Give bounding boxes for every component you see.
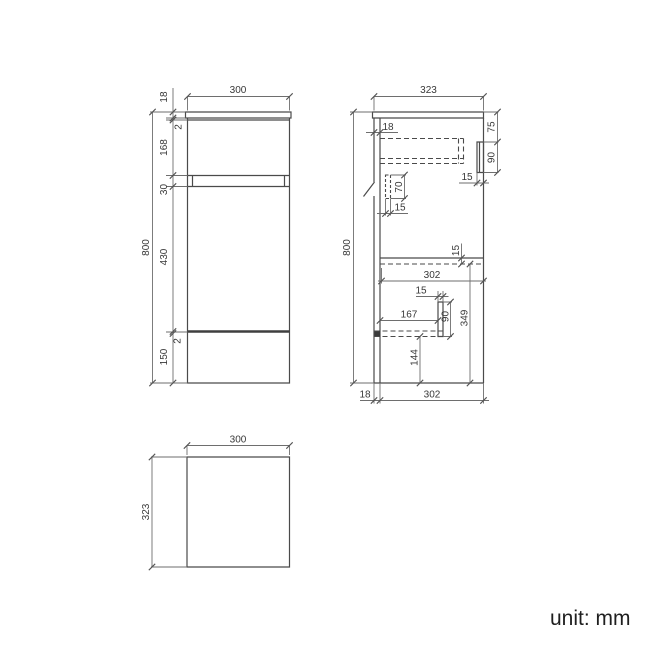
- top-view-dimension-lines: [149, 442, 293, 570]
- svg-text:2: 2: [174, 124, 185, 130]
- side-front-offset-dim: 75: [487, 121, 498, 133]
- unit-label: unit: mm: [550, 607, 631, 630]
- side-divider-height-dim: 90: [441, 311, 452, 323]
- side-view-object-lines: [364, 112, 484, 383]
- svg-text:430: 430: [159, 248, 170, 265]
- front-top-thickness-dim: 18: [159, 91, 170, 103]
- svg-text:15: 15: [451, 245, 462, 257]
- side-front-panel-thickness-dim: 15: [461, 172, 473, 183]
- svg-text:800: 800: [141, 239, 152, 256]
- top-view-object-lines: [187, 457, 290, 567]
- front-view-object-lines: [186, 112, 292, 383]
- svg-text:323: 323: [141, 503, 152, 520]
- side-inner-depth-dim: 302: [424, 270, 441, 281]
- side-view-dimension-lines: [350, 93, 500, 403]
- front-view-extension-lines: [150, 97, 290, 384]
- side-plinth-height-dim: 144: [410, 349, 421, 366]
- side-back-bottom-dim: 18: [359, 390, 371, 401]
- svg-text:144: 144: [410, 349, 421, 366]
- side-bracket-height-dim: 70: [394, 181, 405, 193]
- front-view-dimension-lines: [149, 88, 292, 386]
- front-upper-panel-dim: 168: [159, 139, 170, 156]
- side-back-thickness-dim: 18: [382, 122, 394, 133]
- side-shelf-thickness-dim: 15: [451, 245, 462, 257]
- front-view: 300 18 2 168 30 430 2 150 800: [141, 85, 293, 386]
- front-width-dim: 300: [230, 85, 247, 96]
- front-top-gap-dim: 2: [174, 124, 185, 130]
- side-depth-dim: 323: [420, 85, 437, 96]
- top-view-extension-lines: [151, 446, 290, 568]
- front-bottom-gap-dim: 2: [173, 338, 184, 344]
- side-shelf-depth-dim: 167: [401, 310, 418, 321]
- side-lower-height-dim: 349: [460, 309, 471, 326]
- svg-text:800: 800: [342, 239, 353, 256]
- top-depth-dim: 323: [141, 503, 152, 520]
- front-door-dim: 430: [159, 248, 170, 265]
- svg-text:30: 30: [159, 184, 170, 196]
- svg-text:18: 18: [159, 91, 170, 103]
- front-rail-dim: 30: [159, 184, 170, 196]
- side-view: 323 18 75 90 15 70 15 800 15 302 15 167 …: [342, 85, 501, 404]
- svg-text:70: 70: [394, 181, 405, 193]
- top-width-dim: 300: [230, 435, 247, 446]
- top-view: 300 323: [141, 435, 293, 571]
- side-divider-thickness-dim: 15: [415, 286, 427, 297]
- svg-text:75: 75: [487, 121, 498, 133]
- side-view-hidden-lines: [375, 139, 484, 337]
- side-bracket-thickness-dim: 15: [394, 203, 406, 214]
- side-front-panel-height-dim: 90: [487, 152, 498, 164]
- cabinet-dimension-drawing: 300 18 2 168 30 430 2 150 800 323: [0, 0, 650, 650]
- svg-text:150: 150: [159, 348, 170, 365]
- svg-text:2: 2: [173, 338, 184, 344]
- svg-text:349: 349: [460, 309, 471, 326]
- svg-text:168: 168: [159, 139, 170, 156]
- svg-text:90: 90: [487, 152, 498, 164]
- side-view-extension-lines: [350, 97, 499, 404]
- technical-drawing-page: 300 18 2 168 30 430 2 150 800 323: [0, 0, 650, 650]
- front-height-dim: 800: [141, 239, 152, 256]
- side-bottom-depth-dim: 302: [424, 390, 441, 401]
- front-plinth-dim: 150: [159, 348, 170, 365]
- side-height-dim: 800: [342, 239, 353, 256]
- svg-text:90: 90: [441, 311, 452, 323]
